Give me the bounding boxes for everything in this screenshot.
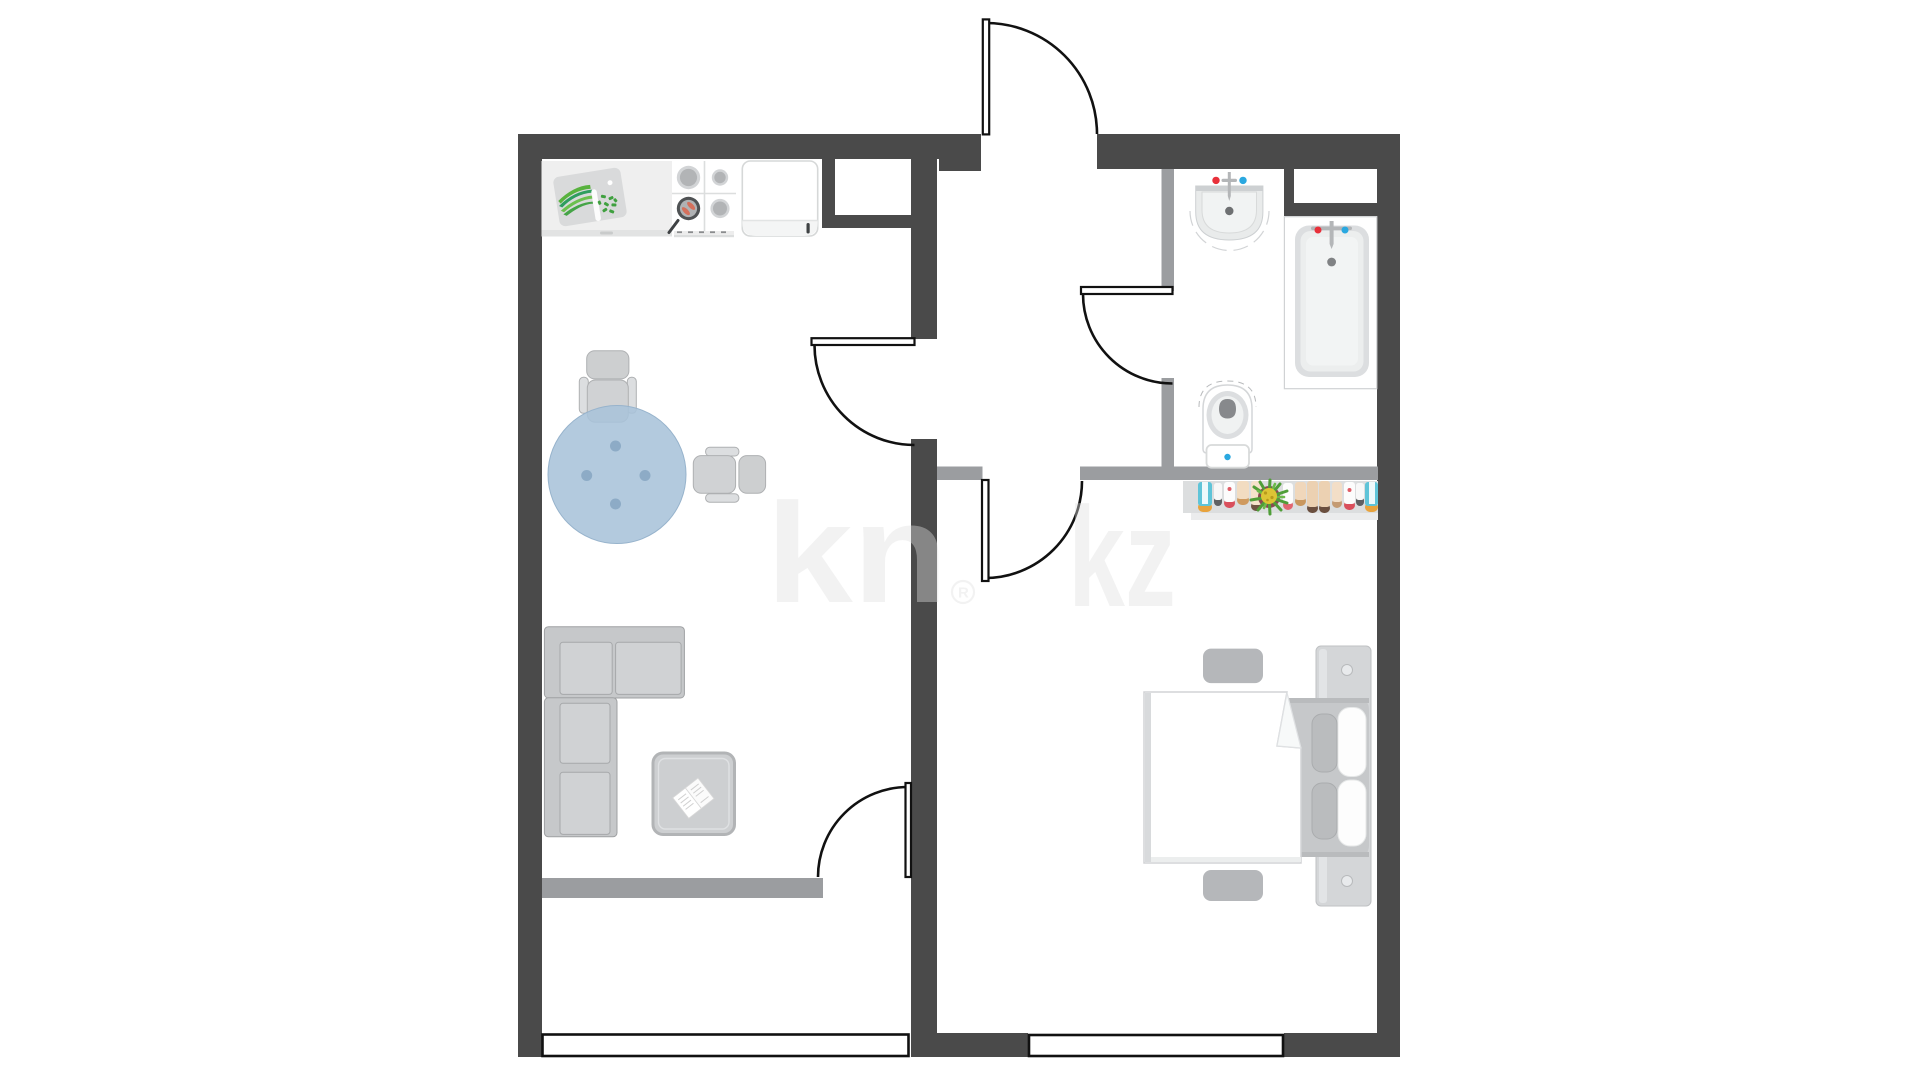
svg-text:kn: kn [766,474,948,633]
svg-text:R: R [958,585,969,602]
svg-text:kz: kz [1068,478,1176,637]
